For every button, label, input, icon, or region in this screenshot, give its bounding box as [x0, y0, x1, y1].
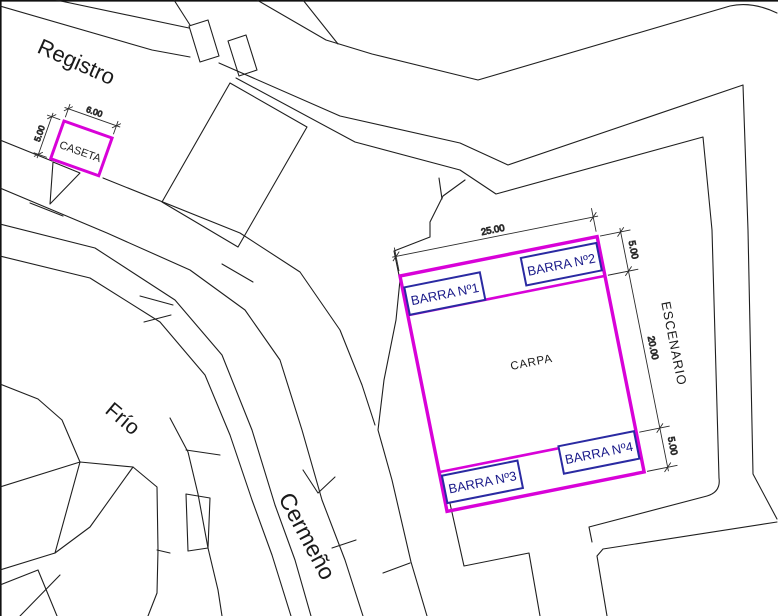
parcel-tick [186, 450, 220, 455]
street-line [103, 178, 375, 425]
parcel-line [170, 418, 222, 616]
building-outline [0, 570, 57, 616]
carpa-rect [400, 237, 644, 512]
street-line [439, 178, 442, 199]
building-ridge [0, 384, 80, 462]
street-line [174, 0, 190, 25]
barra-box-3: BARRA Nº3 [442, 461, 523, 504]
barra-box-1: BARRA Nº1 [404, 272, 485, 315]
barra-box-4: BARRA Nº4 [558, 431, 639, 474]
parcel-tick [30, 203, 63, 216]
building-outline [162, 83, 307, 247]
carpa-label: CARPA [509, 353, 553, 373]
street-line [0, 256, 291, 616]
street-label-registro: Registro [34, 34, 119, 90]
escenario-label: ESCENARIO [658, 300, 689, 387]
caseta-group: CASETA 6.00 5.00 [27, 90, 124, 180]
caseta-width-value: 6.00 [85, 104, 104, 119]
carpa-top-strip-value: 5.00 [626, 240, 640, 260]
carpa-bottom-strip-value: 5.00 [665, 436, 679, 456]
site-plan: Registro Frío Cermeño CASETA 6.00 5.00 B… [0, 0, 778, 616]
street-label-frio: Frío [101, 398, 144, 440]
site-plan-canvas: Registro Frío Cermeño CASETA 6.00 5.00 B… [0, 0, 778, 616]
street-line [0, 224, 311, 616]
street-line [56, 0, 189, 28]
parcel-tick [157, 550, 170, 553]
street-line [597, 522, 777, 616]
caseta-label: CASETA [58, 139, 103, 165]
caseta-height-value: 5.00 [32, 124, 47, 143]
parcel-tick [222, 264, 253, 282]
street-line [0, 6, 190, 57]
parcel-tick [140, 296, 173, 305]
carpa-middle-value: 20.00 [645, 335, 660, 360]
carpa-width-value: 25.00 [480, 223, 505, 238]
carpa-group: BARRA Nº1 BARRA Nº2 BARRA Nº3 BARRA Nº4 … [390, 193, 706, 516]
parcel-outline [186, 494, 210, 551]
traffic-island [228, 35, 257, 76]
plaza-boundary [449, 499, 540, 616]
parcel-tick [332, 540, 356, 548]
traffic-island [189, 20, 219, 62]
street-line [219, 63, 777, 519]
parcel-ticks [30, 203, 356, 553]
parcel-tick [383, 563, 410, 573]
street-label-cermeno: Cermeño [274, 488, 341, 584]
building-outline [0, 462, 158, 616]
street-line [0, 140, 52, 161]
building-ridge [0, 462, 80, 570]
